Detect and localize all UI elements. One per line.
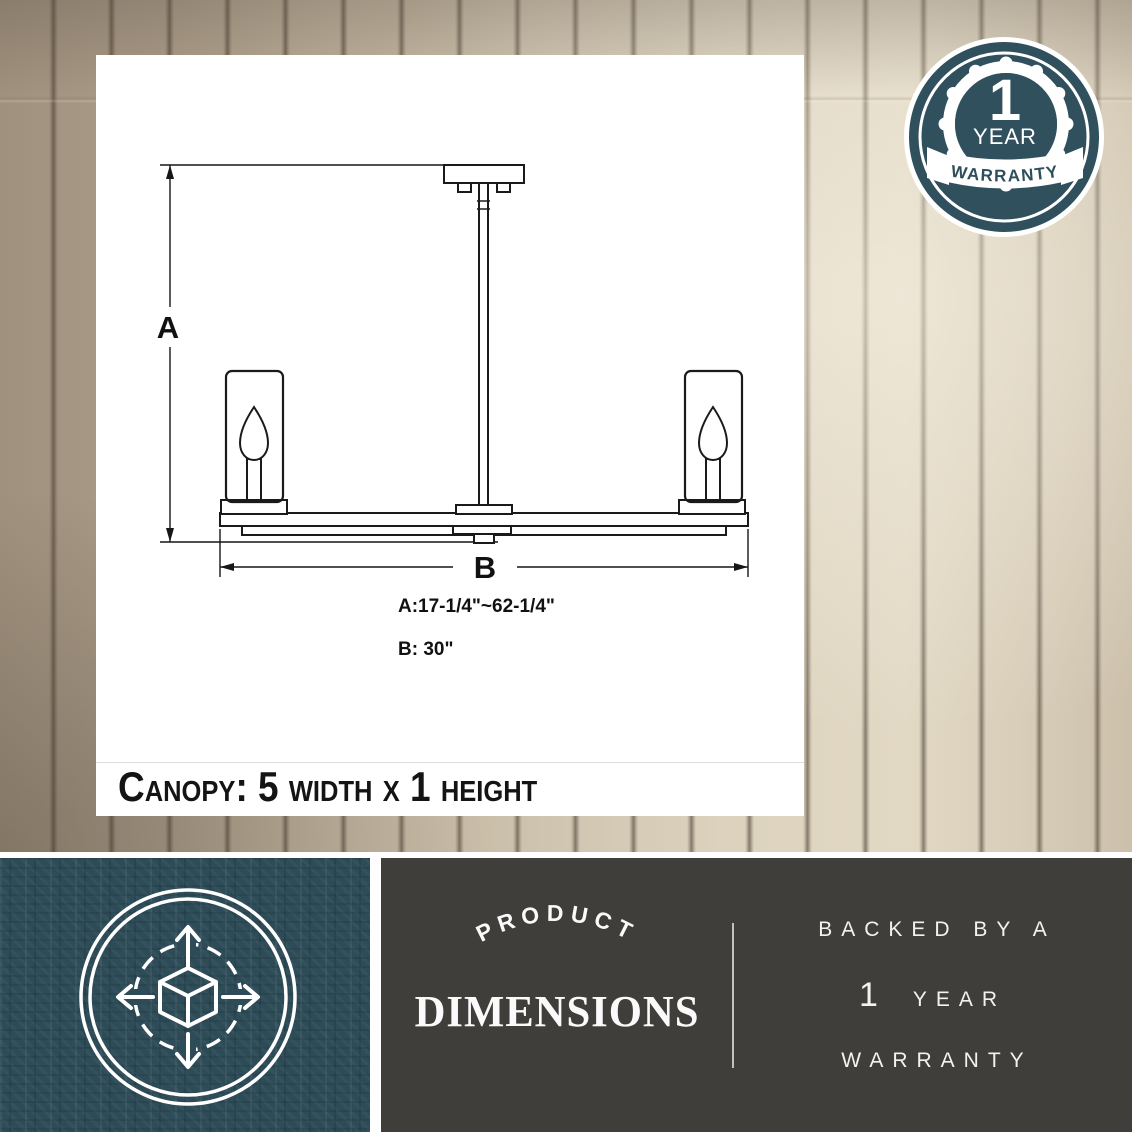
warranty-word: WARRANTY — [832, 1049, 1032, 1073]
chandelier-drawing — [220, 165, 748, 543]
center-flange-bottom — [453, 526, 511, 534]
dim-b-label: B — [474, 550, 496, 585]
product-panel: A B — [96, 55, 804, 816]
arrow-up-icon — [166, 165, 174, 179]
canopy-tab — [458, 183, 471, 192]
arrow-right-icon — [734, 563, 748, 571]
dimension-drawing: A B — [96, 55, 804, 762]
arrow-left-icon — [220, 563, 234, 571]
fixture-downrod — [479, 183, 488, 508]
title-column: PRODUCT DIMENSIONS — [381, 858, 733, 1132]
candle-sleeve-left — [247, 459, 261, 502]
backed-by-line: BACKED BY A — [809, 918, 1056, 942]
dimensions-title: DIMENSIONS — [386, 986, 727, 1037]
dim-a-value: A:17-1/4"~62-1/4" — [398, 596, 555, 617]
dim-b-value: B: 30" — [398, 639, 453, 660]
dimensions-icon-panel — [0, 858, 370, 1132]
dim-a-label: A — [157, 310, 179, 345]
footer: PRODUCT DIMENSIONS BACKED BY A 1 YEAR WA… — [0, 852, 1132, 1132]
center-flange-top — [456, 505, 512, 514]
candle-sleeve-right — [706, 459, 720, 502]
candle-bulb-left — [240, 407, 268, 460]
expand-arrows — [118, 927, 258, 1067]
product-dimensions-poster: A B — [0, 0, 1132, 1132]
year-number: 1 — [859, 976, 884, 1015]
center-stub — [474, 534, 494, 543]
arrow-down-icon — [166, 528, 174, 542]
product-arched-label: PRODUCT — [472, 900, 642, 947]
dimension-a — [160, 165, 498, 542]
ceiling-canopy — [444, 165, 524, 183]
badge-year-label: YEAR — [973, 124, 1037, 149]
cube-expand-arrows-icon — [73, 882, 303, 1112]
canopy-note: Canopy: 5 width x 1 height — [118, 763, 537, 811]
warranty-badge: 1 YEAR WARRANTY — [903, 36, 1105, 238]
year-line: 1 YEAR — [859, 976, 1006, 1015]
product-dimensions-panel: PRODUCT DIMENSIONS BACKED BY A 1 YEAR WA… — [381, 858, 1132, 1132]
year-word: YEAR — [904, 988, 1006, 1012]
candle-bulb-right — [699, 407, 727, 460]
vertical-divider — [732, 923, 734, 1068]
warranty-text-column: BACKED BY A 1 YEAR WARRANTY — [733, 858, 1132, 1132]
canopy-tab — [497, 183, 510, 192]
